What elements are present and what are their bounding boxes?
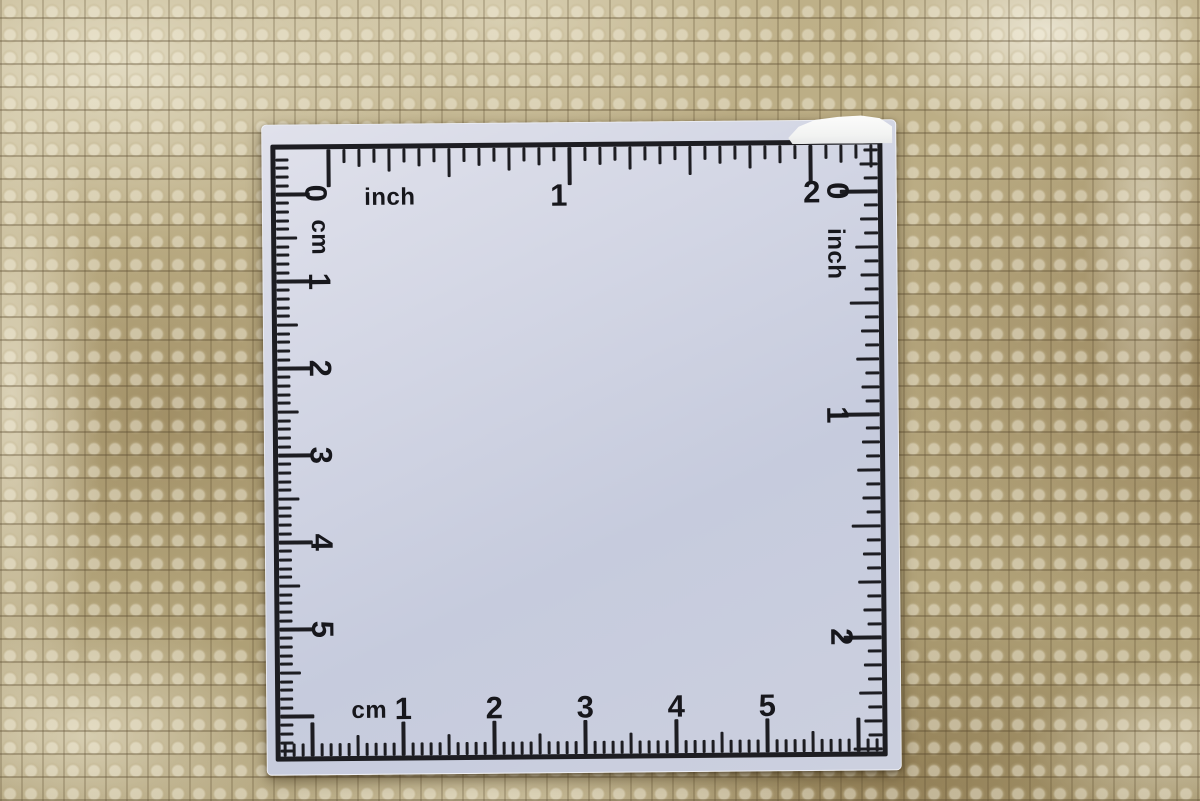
- left-cm-2-label: 2: [305, 360, 336, 378]
- left-cm-unit-label: cm: [307, 219, 331, 255]
- left-cm-5-label: 5: [307, 621, 338, 639]
- scale-card: 0 0 inch 1 2 inch 1 2 cm 1 2 3 4 5 cm 1 …: [261, 119, 902, 776]
- bottom-cm-1-label: 1: [395, 693, 413, 724]
- right-inch-2-label: 2: [826, 628, 857, 646]
- ruler-frame: [270, 139, 887, 761]
- top-right-zero-label: 0: [822, 182, 853, 200]
- bottom-cm-5-label: 5: [758, 690, 776, 721]
- top-left-zero-label: 0: [300, 185, 331, 203]
- bottom-cm-2-label: 2: [486, 692, 504, 723]
- left-cm-1-label: 1: [304, 273, 335, 291]
- bottom-cm-3-label: 3: [577, 691, 595, 722]
- top-inch-1-label: 1: [550, 180, 568, 211]
- bottom-cm-4-label: 4: [668, 691, 686, 722]
- right-inch-1-label: 1: [822, 406, 853, 424]
- left-cm-4-label: 4: [306, 534, 337, 552]
- top-inch-2-label: 2: [803, 176, 821, 207]
- bottom-cm-unit-label: cm: [351, 699, 387, 723]
- left-cm-3-label: 3: [305, 447, 336, 465]
- card-corner-chip: [788, 115, 892, 144]
- right-inch-unit-label: inch: [823, 228, 847, 280]
- top-inch-unit-label: inch: [364, 185, 416, 209]
